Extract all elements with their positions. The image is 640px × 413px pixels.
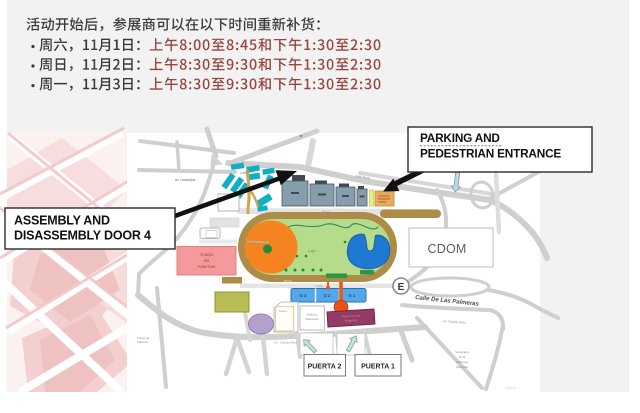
svg-text:Nacional: Nacional — [456, 365, 468, 369]
svg-text:Pista: Pista — [316, 284, 323, 288]
svg-text:Granja: Granja — [200, 252, 213, 257]
svg-text:PUERTA 1: PUERTA 1 — [361, 364, 395, 371]
svg-text:Deportes: Deportes — [345, 318, 358, 323]
svg-text:Palomares: Palomares — [305, 317, 319, 321]
svg-text:Americas: Americas — [198, 264, 215, 269]
svg-text:ASSEMBLY AND: ASSEMBLY AND — [14, 214, 110, 228]
svg-text:CDOM: CDOM — [428, 242, 467, 256]
svg-text:PUERTA 2: PUERTA 2 — [308, 364, 342, 371]
svg-text:PARKING AND: PARKING AND — [420, 131, 500, 145]
svg-text:DISASSEMBLY DOOR 4: DISASSEMBLY DOOR 4 — [14, 229, 151, 243]
svg-text:Av. Conscripto: Av. Conscripto — [175, 178, 196, 182]
svg-text:VILLA: VILLA — [505, 385, 516, 390]
svg-text:Secretaria: Secretaria — [455, 350, 469, 354]
svg-text:Teatro: Teatro — [279, 309, 288, 313]
svg-text:Estacion: Estacion — [307, 313, 318, 317]
svg-text:las: las — [204, 258, 209, 263]
svg-text:de la: de la — [459, 355, 466, 359]
svg-text:G 2: G 2 — [324, 293, 331, 298]
svg-text:Palomas: Palomas — [137, 340, 148, 344]
svg-text:G 1: G 1 — [349, 293, 356, 298]
svg-text:Pista: Pista — [322, 210, 330, 214]
svg-text:PEDESTRIAN ENTRANCE: PEDESTRIAN ENTRANCE — [420, 146, 561, 160]
svg-text:Lago: Lago — [308, 249, 316, 253]
svg-text:G 3: G 3 — [300, 293, 307, 298]
svg-text:Pista: Pista — [284, 280, 292, 284]
svg-text:Av. - Claudio Mirlo: Av. - Claudio Mirlo — [274, 341, 297, 345]
svg-text:Defensa: Defensa — [456, 360, 468, 364]
svg-text:E: E — [398, 282, 405, 293]
